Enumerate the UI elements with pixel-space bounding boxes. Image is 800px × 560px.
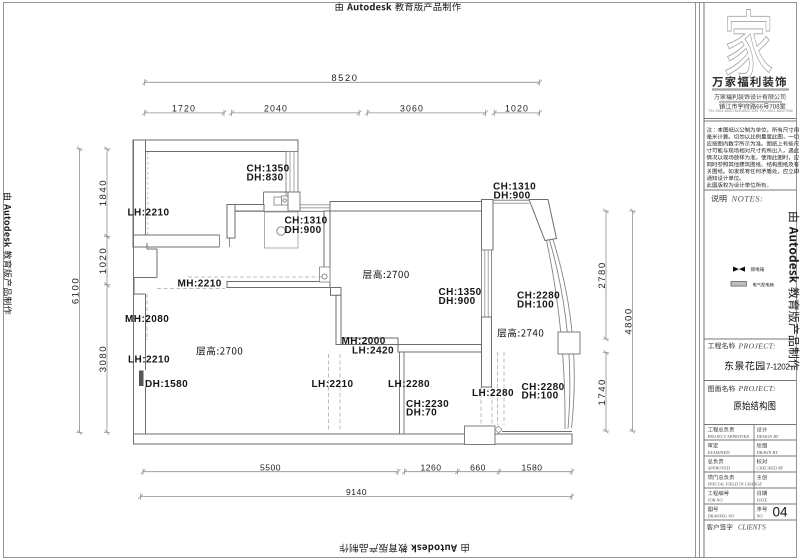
svg-text:DH:900: DH:900 xyxy=(285,225,322,236)
svg-text:8520: 8520 xyxy=(331,72,358,83)
svg-text:DH:70: DH:70 xyxy=(406,408,437,419)
svg-text:APPROVED: APPROVED xyxy=(707,466,731,471)
svg-text:LH:2210: LH:2210 xyxy=(128,208,170,219)
svg-text:DATE: DATE xyxy=(756,498,768,503)
svg-text:1840: 1840 xyxy=(98,179,109,206)
svg-text:LH:2210: LH:2210 xyxy=(128,355,170,366)
svg-text:1020: 1020 xyxy=(505,104,529,114)
svg-text:NO: NO xyxy=(756,513,764,518)
svg-text:660: 660 xyxy=(470,462,486,472)
svg-text:9140: 9140 xyxy=(346,487,367,497)
svg-text:LH:2280: LH:2280 xyxy=(472,388,514,399)
svg-text:TEL:0511-85027628-85027638 FA: TEL:0511-85027628-85027638 FAX:0511-8502… xyxy=(708,109,792,113)
svg-text:PROJECT:: PROJECT: xyxy=(738,384,776,393)
svg-text:DH:100: DH:100 xyxy=(517,300,554,311)
svg-text:7-1202: 7-1202 xyxy=(766,363,790,372)
svg-text:4800: 4800 xyxy=(623,307,634,334)
svg-text:JOB NO: JOB NO xyxy=(708,498,724,503)
svg-text:DRAWN BY: DRAWN BY xyxy=(756,450,779,455)
svg-text:LH:2280: LH:2280 xyxy=(388,379,430,390)
svg-text:DRAWING NO: DRAWING NO xyxy=(707,513,736,518)
svg-text:5500: 5500 xyxy=(260,462,281,472)
svg-text:DH:1580: DH:1580 xyxy=(145,379,188,390)
svg-text:SPECIAL FIELD IN CHARGE: SPECIAL FIELD IN CHARGE xyxy=(708,482,763,487)
svg-text:1020: 1020 xyxy=(98,247,109,274)
svg-text:PROJECT APPROVER: PROJECT APPROVER xyxy=(707,434,750,439)
svg-text:2780: 2780 xyxy=(597,261,608,288)
svg-text:CHECKED BY: CHECKED BY xyxy=(757,466,784,471)
svg-text:04: 04 xyxy=(773,505,789,520)
svg-text:LH:2420: LH:2420 xyxy=(352,346,394,357)
svg-text:DH:900: DH:900 xyxy=(494,191,531,202)
svg-text:1740: 1740 xyxy=(597,378,608,405)
svg-text:NOTES:: NOTES: xyxy=(731,194,764,204)
svg-text:MH:2080: MH:2080 xyxy=(125,314,169,325)
svg-text:DESIGN BY: DESIGN BY xyxy=(756,434,779,439)
svg-text:EXAMINED: EXAMINED xyxy=(707,450,731,455)
svg-text:DH:830: DH:830 xyxy=(247,173,284,184)
svg-text:PROJECT:: PROJECT: xyxy=(738,341,776,350)
svg-text:DH:900: DH:900 xyxy=(439,296,476,307)
svg-text:1580: 1580 xyxy=(521,462,542,472)
svg-text:DH:100: DH:100 xyxy=(522,391,559,402)
svg-text:CLIENT'S: CLIENT'S xyxy=(738,525,766,532)
svg-text:LH:2210: LH:2210 xyxy=(312,379,354,390)
svg-text:3080: 3080 xyxy=(98,345,109,372)
svg-text:MH:2210: MH:2210 xyxy=(178,279,222,290)
svg-text:1720: 1720 xyxy=(172,104,196,114)
svg-text:2040: 2040 xyxy=(264,104,288,114)
svg-text:6100: 6100 xyxy=(70,277,81,304)
svg-text:1260: 1260 xyxy=(420,462,441,472)
svg-text:3060: 3060 xyxy=(400,104,424,114)
